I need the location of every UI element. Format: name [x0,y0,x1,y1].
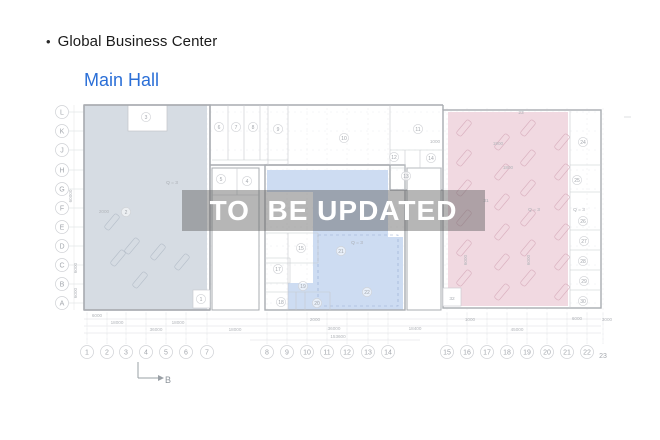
plan-note: Q = 3 [528,207,540,213]
col-axis-label: 1 [85,349,89,356]
dim-label: 6000 [73,262,78,273]
dim-label: 6000 [463,254,468,265]
col-axis-label: 16 [463,349,471,356]
dim-label: 1800 [503,165,514,170]
dim-label: 3000 [602,317,613,322]
dim-label: 18000 [229,327,242,332]
plan-note: Q = 3 [166,180,178,186]
section-marker-arrow [158,375,164,381]
dim-label: 6000 [572,316,583,321]
room-number: 7 [235,125,238,131]
dim-label: 6000 [526,254,531,265]
page-title: Global Business Center [58,33,218,50]
col-axis-label: 11 [323,349,330,356]
page-header: • Global Business Center [46,33,217,50]
dim-label: 18000 [172,320,185,325]
room-number: 13 [403,174,409,180]
room-number: 11 [415,127,420,133]
room-number: 22 [364,290,370,296]
row-axis-label: D [59,243,64,250]
bullet-icon: • [46,34,51,49]
room-number: 17 [275,267,281,273]
hall-subtitle-link[interactable]: Main Hall [84,70,159,91]
room-number: 21 [338,249,344,255]
dim-label: 6000 [92,313,103,318]
room-number: 12 [391,155,397,161]
room-number: 19 [300,284,306,290]
row-axis-label: K [60,128,65,135]
row-axis-label: L [60,109,64,116]
row-axis-label: F [60,205,64,212]
plan-note: Q = 3 [351,240,363,246]
row-axis-label: A [60,300,65,307]
col-axis-label: 23 [599,353,607,360]
row-axis-label: E [60,224,65,231]
col-axis-label: 18 [503,349,511,356]
plan-note: 32 [449,296,455,302]
col-axis-label: 7 [205,349,209,356]
room-number: 5 [220,177,223,183]
section-marker-label: B [165,375,171,385]
dim-label: 6000 [73,287,78,298]
col-axis-label: 20 [543,349,551,356]
dim-label: 2000 [310,317,321,322]
room-number: 3 [145,115,148,121]
plan-note: Q = 3 [573,207,585,213]
col-axis-label: 6 [184,349,188,356]
col-axis-label: 19 [523,349,531,356]
row-axis-label: J [60,147,64,154]
col-axis-label: 13 [364,349,372,356]
room-number: 14 [428,156,434,162]
room-number: 8 [252,125,255,131]
col-axis-label: 21 [563,349,571,356]
row-axis-label: H [59,167,64,174]
room-number: 30 [580,299,586,305]
dim-label: 1000 [465,317,476,322]
room-number: 25 [574,178,580,184]
dim-label: 153600 [330,334,346,339]
row-axis-label: C [59,262,64,269]
watermark-banner: TO BE UPDATED [182,190,485,231]
dim-label: 18000 [111,320,124,325]
room-number: 20 [314,301,320,307]
dim-label: 18400 [409,326,422,331]
col-axis-label: 10 [303,349,311,356]
col-axis-label: 4 [144,349,148,356]
col-axis-label: 14 [384,349,392,356]
col-axis-label: 9 [285,349,289,356]
col-axis-label: 22 [583,349,591,356]
dim-label: 1000 [430,139,441,144]
room-number: 29 [581,279,587,285]
room-number: 15 [298,246,304,252]
row-axis-label: B [60,281,65,288]
room-number: 2 [125,210,128,216]
room-number: 10 [341,136,347,142]
room-number: 4 [246,179,249,185]
dim-label: 2000 [99,209,110,214]
col-axis-label: 3 [124,349,128,356]
col-axis-label: 15 [443,349,451,356]
room-number: 1 [200,297,203,303]
dim-label: 36000 [328,326,341,331]
room-number: 9 [277,127,280,133]
watermark-text: TO BE UPDATED [210,195,458,227]
plan-note: 23 [518,110,524,116]
room-number: 26 [580,219,586,225]
col-axis-label: 8 [265,349,269,356]
row-axis-label: G [59,186,64,193]
col-axis-label: 17 [483,349,491,356]
dim-label: 1900 [493,141,504,146]
col-axis-label: 5 [164,349,168,356]
room-number: 27 [581,239,587,245]
room-number: 28 [580,259,586,265]
room-number: 6 [218,125,221,131]
col-axis-label: 12 [343,349,351,356]
dim-label: 36000 [150,327,163,332]
dim-label: 45000 [511,327,524,332]
col-axis-label: 2 [105,349,109,356]
room-number: 18 [278,300,284,306]
left-zone [84,248,207,310]
room-number: 24 [580,140,586,146]
dim-label: 60000 [68,189,73,202]
